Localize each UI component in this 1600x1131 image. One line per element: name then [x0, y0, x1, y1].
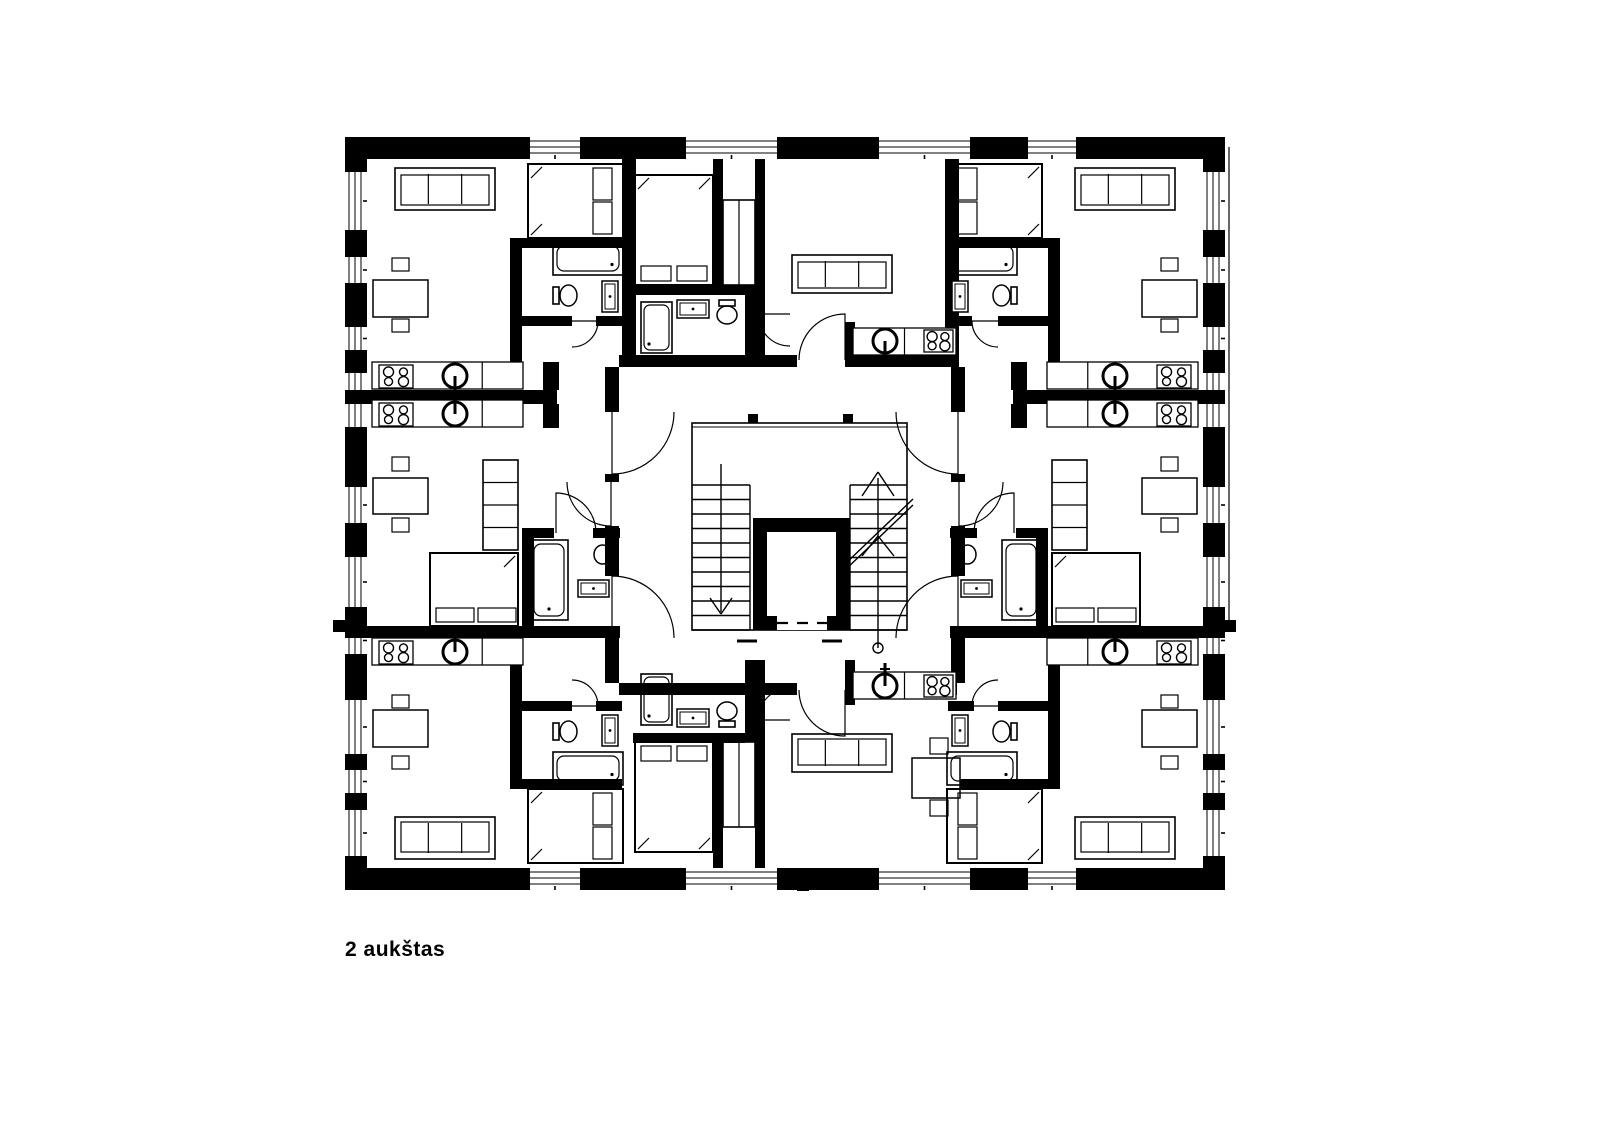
interior-wall: [345, 626, 620, 638]
door-swing: [972, 680, 998, 706]
floor-plan-drawing: 1234567891010987654321DOWNDOWN: [0, 0, 1600, 1131]
interior-wall: [951, 474, 965, 482]
floor-plan-page: 1234567891010987654321DOWNDOWN 2 aukštas: [0, 0, 1600, 1131]
door-swing: [567, 482, 611, 526]
floor-label: 2 aukštas: [345, 938, 445, 962]
door-swing: [612, 576, 674, 638]
interior-wall: [950, 528, 977, 538]
interior-wall: [745, 285, 757, 367]
interior-wall: [522, 701, 572, 711]
facade-marker: [748, 414, 758, 423]
interior-wall: [619, 683, 797, 695]
floor-plan-svg: 1234567891010987654321DOWNDOWN: [0, 0, 1600, 1131]
interior-wall: [510, 238, 522, 364]
door-swing: [556, 493, 596, 533]
interior-wall: [745, 660, 757, 742]
door-swing: [612, 412, 674, 474]
interior-wall: [522, 316, 572, 326]
exterior-wall-top: [345, 137, 1225, 159]
interior-wall: [605, 638, 619, 683]
interior-wall: [948, 701, 974, 711]
interior-wall: [946, 316, 972, 326]
facade-marker: [333, 620, 345, 632]
facade-marker: [843, 414, 853, 423]
interior-wall: [633, 285, 745, 295]
door-swing: [799, 690, 845, 736]
interior-wall: [713, 742, 723, 868]
interior-wall: [596, 701, 622, 711]
interior-wall: [622, 159, 636, 367]
interior-wall: [951, 367, 965, 412]
interior-wall: [1011, 404, 1027, 428]
interior-wall: [950, 626, 1225, 638]
interior-wall: [998, 701, 1048, 711]
facade-marker: [797, 884, 809, 891]
door-swing: [572, 680, 598, 706]
interior-wall: [605, 367, 619, 412]
interior-wall: [1011, 362, 1027, 390]
exterior-wall-bottom: [345, 868, 1225, 890]
door-swing: [974, 493, 1014, 533]
interior-wall: [1016, 528, 1036, 538]
interior-wall: [543, 404, 559, 428]
interior-wall: [510, 663, 522, 789]
door-swing: [959, 482, 1003, 526]
interior-wall: [998, 316, 1048, 326]
interior-wall: [522, 528, 534, 626]
interior-wall: [605, 474, 619, 482]
interior-wall: [619, 355, 797, 367]
interior-wall: [713, 159, 723, 285]
interior-wall: [543, 362, 559, 390]
facade-marker: [1224, 620, 1236, 632]
interior-wall: [593, 528, 620, 538]
interior-wall: [534, 528, 554, 538]
door-swing: [972, 321, 998, 347]
interior-wall: [1048, 238, 1060, 364]
interior-wall: [1036, 528, 1048, 626]
door-swing: [572, 321, 598, 347]
interior-wall: [1048, 663, 1060, 789]
interior-wall: [845, 355, 957, 367]
interior-wall: [596, 316, 622, 326]
door-swing: [799, 314, 845, 360]
